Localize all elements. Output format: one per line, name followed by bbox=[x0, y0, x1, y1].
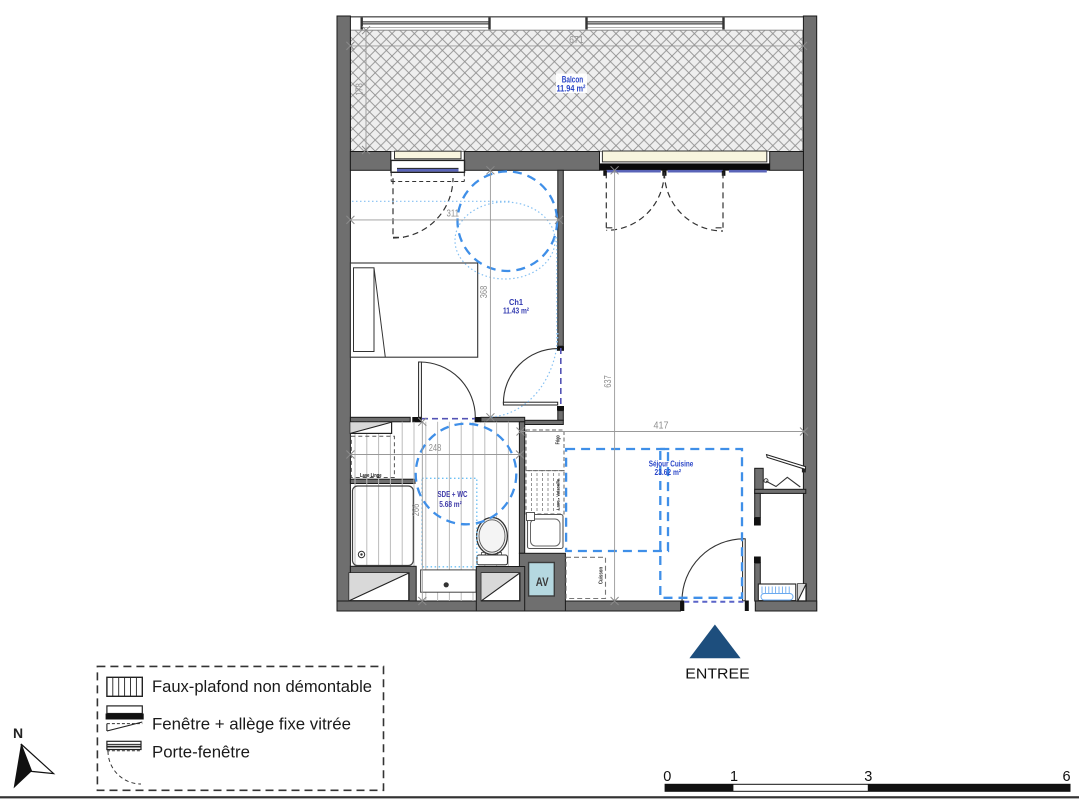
svg-text:5.68 m²: 5.68 m² bbox=[439, 500, 462, 509]
svg-text:0: 0 bbox=[663, 769, 671, 785]
svg-text:671: 671 bbox=[569, 35, 584, 46]
svg-text:Faux-plafond non démontable: Faux-plafond non démontable bbox=[152, 677, 372, 696]
svg-text:6: 6 bbox=[1062, 769, 1070, 785]
svg-text:23.62 m²: 23.62 m² bbox=[655, 467, 682, 477]
svg-text:417: 417 bbox=[654, 421, 669, 432]
svg-text:Cuisson: Cuisson bbox=[599, 567, 605, 584]
svg-text:AV: AV bbox=[536, 575, 549, 589]
svg-text:11.94 m²: 11.94 m² bbox=[557, 84, 586, 95]
svg-text:Porte-fenêtre: Porte-fenêtre bbox=[152, 743, 250, 762]
svg-text:311: 311 bbox=[447, 209, 460, 220]
svg-text:368: 368 bbox=[479, 285, 490, 298]
svg-text:Lave - Vaisselle: Lave - Vaisselle bbox=[556, 479, 561, 510]
svg-text:178: 178 bbox=[355, 83, 366, 96]
svg-text:Lave Linge: Lave Linge bbox=[360, 473, 382, 479]
svg-text:637: 637 bbox=[603, 375, 614, 388]
svg-text:ENTREE: ENTREE bbox=[685, 667, 750, 683]
svg-text:Frigo: Frigo bbox=[556, 435, 562, 444]
svg-text:N: N bbox=[13, 725, 23, 741]
svg-text:3: 3 bbox=[864, 769, 872, 785]
svg-text:1: 1 bbox=[730, 769, 738, 785]
svg-text:Fenêtre + allège fixe vitrée: Fenêtre + allège fixe vitrée bbox=[152, 715, 351, 734]
svg-text:248: 248 bbox=[429, 443, 442, 454]
svg-text:SDE + WC: SDE + WC bbox=[438, 490, 468, 499]
svg-text:11.43 m²: 11.43 m² bbox=[503, 307, 529, 316]
svg-text:266: 266 bbox=[411, 503, 422, 516]
